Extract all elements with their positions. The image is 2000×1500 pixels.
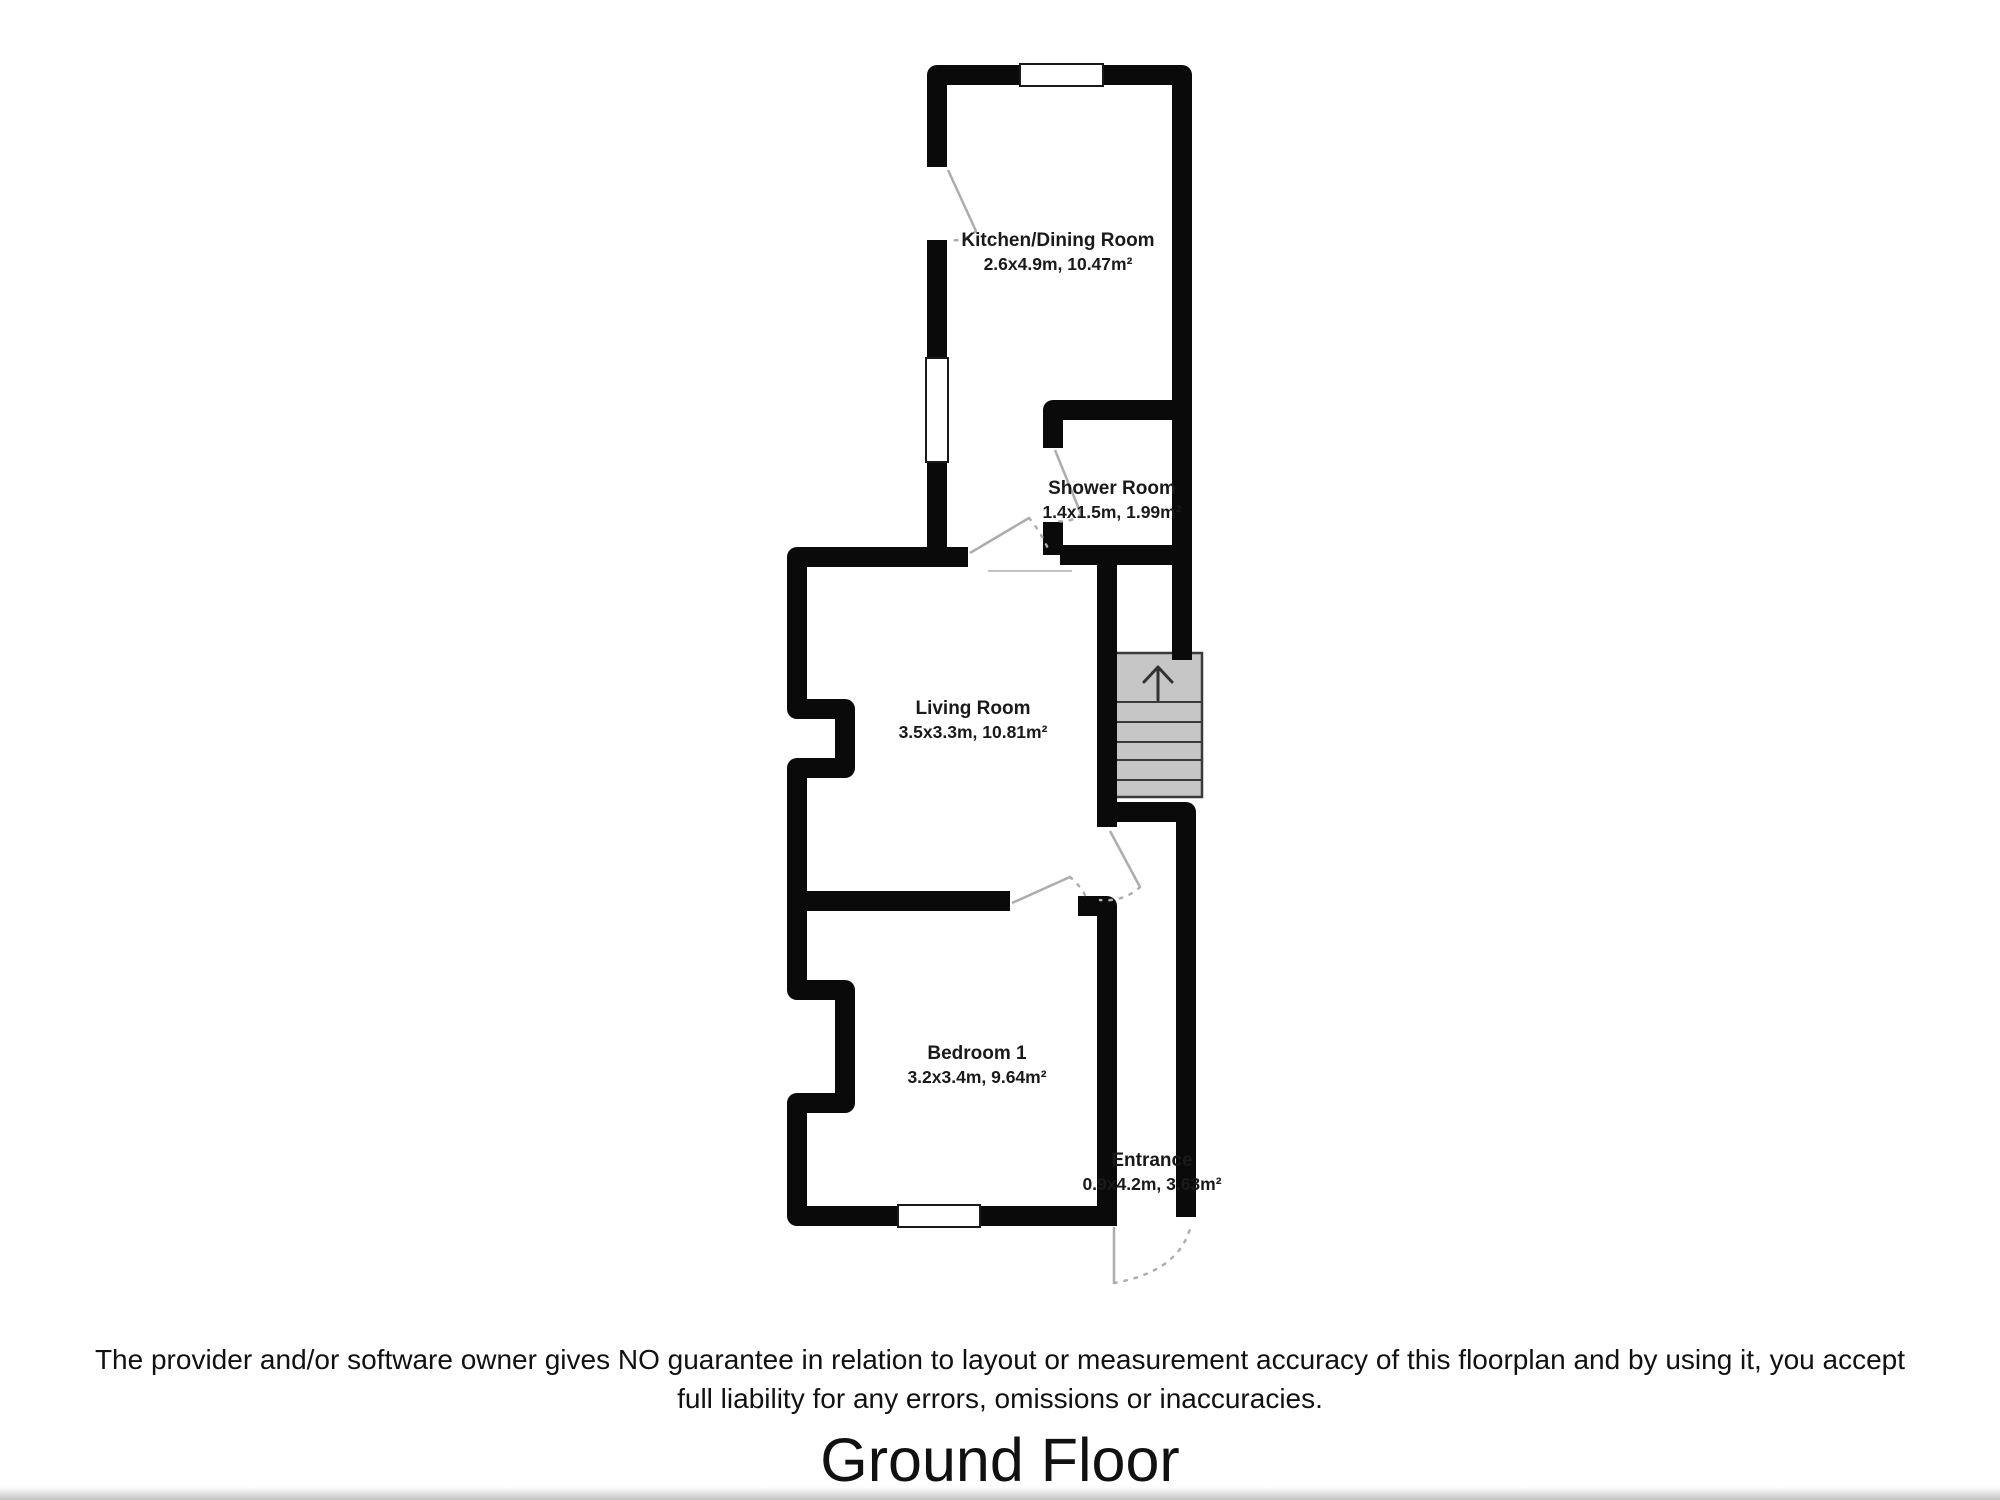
wall-shower-top-left [1053,410,1182,448]
room-label-living-room: Living Room 3.5x3.3m, 10.81m² [899,697,1048,743]
door-leaf-bedroom [1012,877,1070,903]
room-name: Entrance [1082,1149,1221,1173]
floorplan-canvas: Kitchen/Dining Room 2.6x4.9m, 10.47m² Sh… [0,0,2000,1500]
floorplan-drawing [0,0,2000,1500]
window-bedroom-bottom [898,1205,980,1227]
room-name: Kitchen/Dining Room [961,229,1154,253]
door-leaf-kitchen-living [970,518,1029,553]
door-leaf-kitchen-entry [948,170,976,231]
wall-kitchen-top-left [937,75,1020,167]
disclaimer-line-1: The provider and/or software owner gives… [0,1340,2000,1379]
room-dimensions: 0.9x4.2m, 3.63m² [1082,1173,1221,1195]
disclaimer-line-2: full liability for any errors, omissions… [0,1379,2000,1418]
room-dimensions: 3.5x3.3m, 10.81m² [899,721,1048,743]
room-dimensions: 2.6x4.9m, 10.47m² [961,253,1154,275]
room-label-shower-room: Shower Room 1.4x1.5m, 1.99m² [1042,477,1181,523]
door-swing-bedroom [1070,877,1087,899]
window-kitchen-left [926,358,948,462]
room-name: Shower Room [1042,477,1181,501]
room-name: Living Room [899,697,1048,721]
room-dimensions: 1.4x1.5m, 1.99m² [1042,501,1181,523]
door-leaf-living-hall [1110,831,1140,887]
room-dimensions: 3.2x3.4m, 9.64m² [907,1066,1046,1088]
door-swing-entrance [1114,1229,1190,1283]
wall-bedroom-left-and-bottom [797,901,898,1216]
room-name: Bedroom 1 [907,1042,1046,1066]
staircase [1112,653,1202,797]
floor-title: Ground Floor [0,1428,2000,1492]
room-label-entrance: Entrance 0.9x4.2m, 3.63m² [1082,1149,1221,1195]
room-label-kitchen-dining: Kitchen/Dining Room 2.6x4.9m, 10.47m² [961,229,1154,275]
bottom-gradient-bar [0,1487,2000,1500]
disclaimer-text: The provider and/or software owner gives… [0,1340,2000,1418]
window-kitchen-top [1020,64,1103,86]
room-label-bedroom-1: Bedroom 1 3.2x3.4m, 9.64m² [907,1042,1046,1088]
